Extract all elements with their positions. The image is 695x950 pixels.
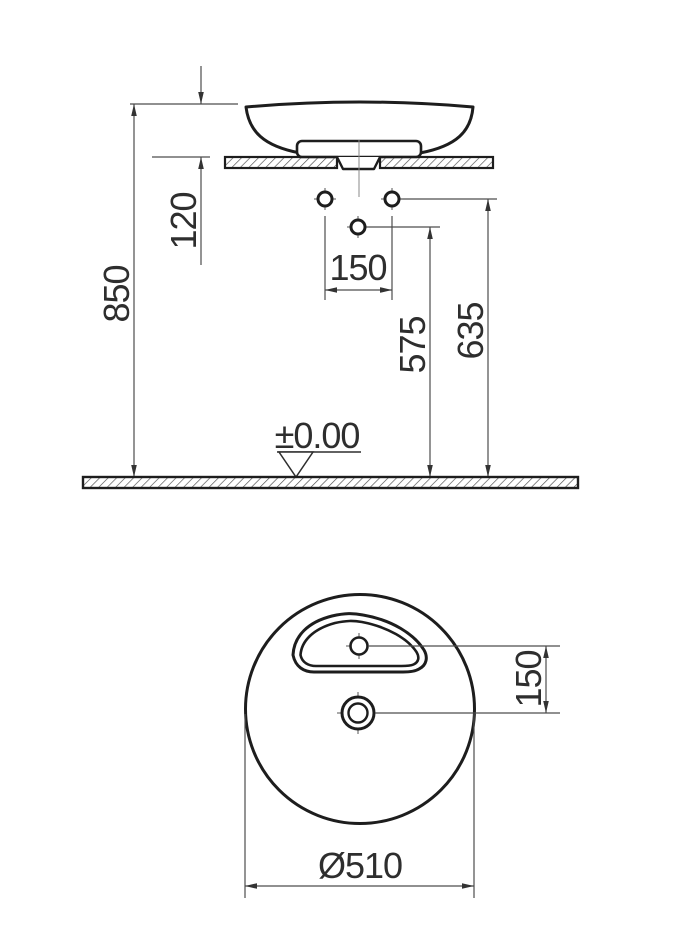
supply-hole-left xyxy=(314,188,336,210)
dim-label-total-height: 850 xyxy=(96,265,137,322)
dim-label-supply-height: 635 xyxy=(450,302,491,359)
datum-triangle-icon xyxy=(279,452,313,477)
plan-view: 150 Ø510 xyxy=(245,595,560,899)
dim-label-tap-to-drain: 150 xyxy=(508,650,549,707)
dim-label-diameter: Ø510 xyxy=(318,845,402,886)
side-elevation-view: 850 120 575 635 150 xyxy=(83,66,578,488)
floor-line xyxy=(83,477,578,488)
datum-label: ±0.00 xyxy=(275,415,360,456)
floor-datum: ±0.00 xyxy=(275,415,361,477)
dim-label-hole-spacing: 150 xyxy=(329,247,386,288)
dim-label-basin-height: 120 xyxy=(163,192,204,249)
supply-hole-right xyxy=(381,188,403,210)
technical-drawing-sheet: 850 120 575 635 150 xyxy=(0,0,695,950)
basin-installation-drawing: 850 120 575 635 150 xyxy=(0,0,695,950)
drain-outlet-hole xyxy=(347,216,369,238)
dim-label-drain-outlet-height: 575 xyxy=(392,316,433,373)
